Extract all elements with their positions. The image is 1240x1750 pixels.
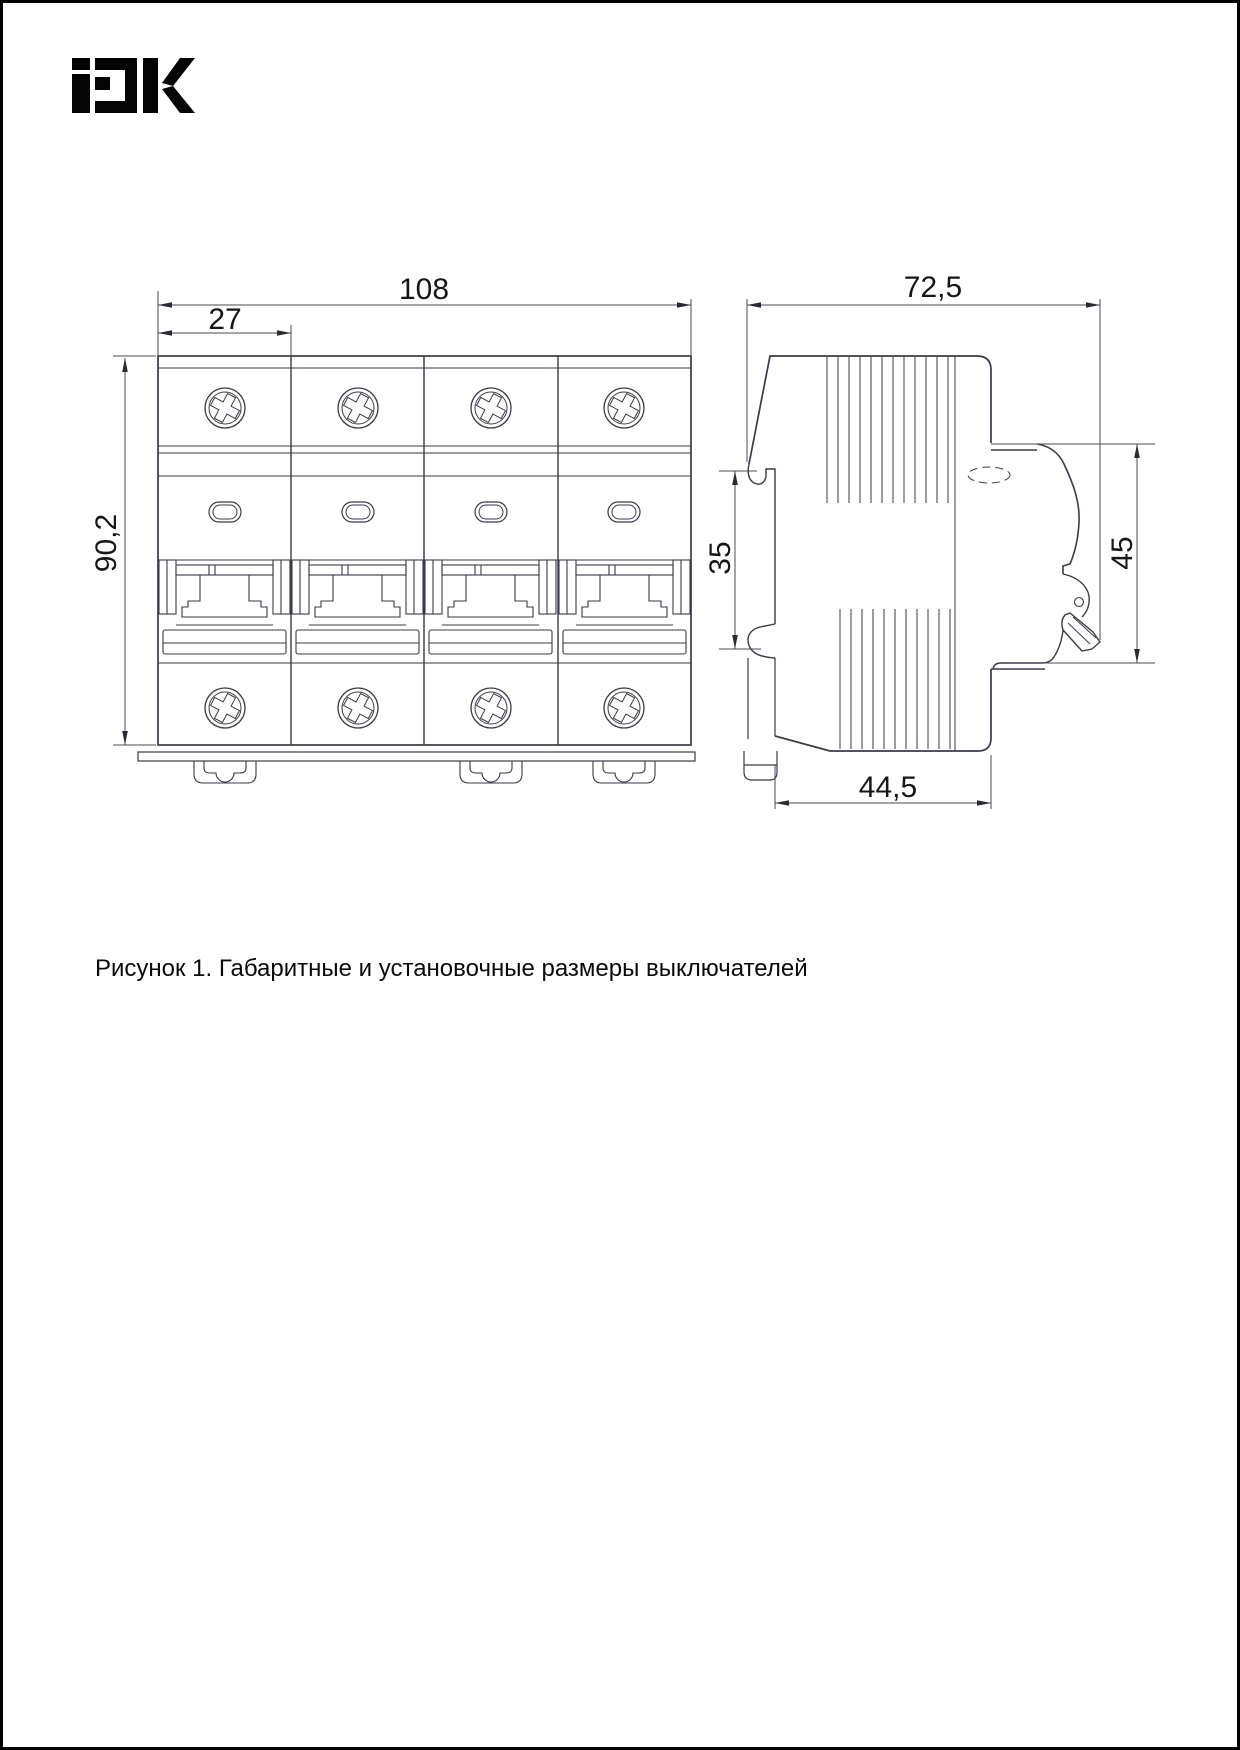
din-clip: [593, 761, 655, 783]
dim-module-27: 27: [208, 303, 241, 336]
screw-icon: [604, 688, 644, 728]
screw-icon: [205, 688, 245, 728]
front-view: [138, 356, 695, 783]
toggle-handle: [559, 560, 690, 625]
din-clip: [460, 761, 522, 783]
indicator-window: [209, 502, 241, 522]
din-claw-top: [748, 464, 775, 624]
dimension-drawing: 108 27 90,2 72,5 35 45 44,5: [3, 3, 1237, 1747]
datasheet-page: 108 27 90,2 72,5 35 45 44,5 Рисунок 1. Г…: [0, 0, 1240, 1750]
din-claw-bottom: [748, 624, 775, 658]
indicator-window: [608, 502, 640, 522]
ribs-top: [827, 357, 948, 503]
side-view: [744, 356, 1100, 780]
toggle-handle: [159, 560, 290, 625]
dim-width-108: 108: [399, 273, 449, 306]
din-clip: [194, 761, 256, 783]
label-strip: [563, 630, 686, 654]
din-latch: [744, 751, 777, 780]
screw-icon: [604, 388, 644, 428]
hidden-screw: [968, 467, 1010, 483]
indicator-window: [342, 502, 374, 522]
dim-depth-72-5: 72,5: [904, 271, 962, 304]
bottom-rail-strip: [138, 752, 695, 761]
ribs-bottom: [840, 609, 950, 749]
screw-icon: [471, 688, 511, 728]
toggle-handle: [425, 560, 556, 625]
label-strip: [429, 630, 552, 654]
lever-pivot: [1075, 598, 1084, 607]
lever-handle: [1062, 613, 1100, 651]
dim-mount-44-5: 44,5: [859, 771, 917, 804]
dim-height-90-2: 90,2: [90, 514, 123, 572]
screw-icon: [205, 388, 245, 428]
dim-rail-35: 35: [704, 541, 737, 574]
indicator-window: [475, 502, 507, 522]
label-strip: [163, 630, 286, 654]
lever-lobe: [1063, 574, 1089, 617]
screw-icon: [338, 688, 378, 728]
screw-icon: [338, 388, 378, 428]
dim-front-45: 45: [1106, 536, 1139, 569]
toggle-handle: [292, 560, 423, 625]
label-strip: [296, 630, 419, 654]
figure-caption: Рисунок 1. Габаритные и установочные раз…: [95, 955, 808, 983]
screw-icon: [471, 388, 511, 428]
